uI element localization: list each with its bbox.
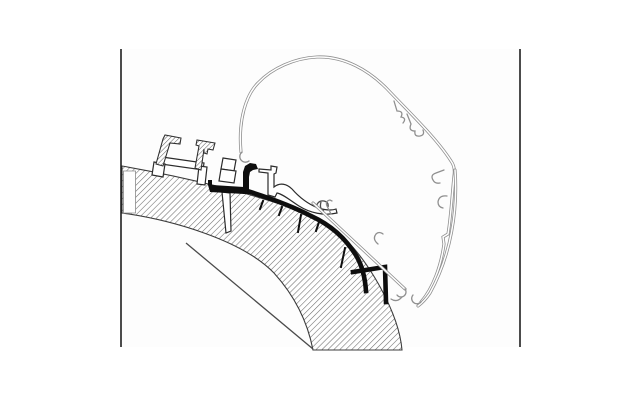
awning-adapter-cross-section-diagram [0,0,640,400]
roof-section-break-notch [124,171,136,213]
diagram-page [0,0,640,400]
screw-washer [219,169,236,183]
